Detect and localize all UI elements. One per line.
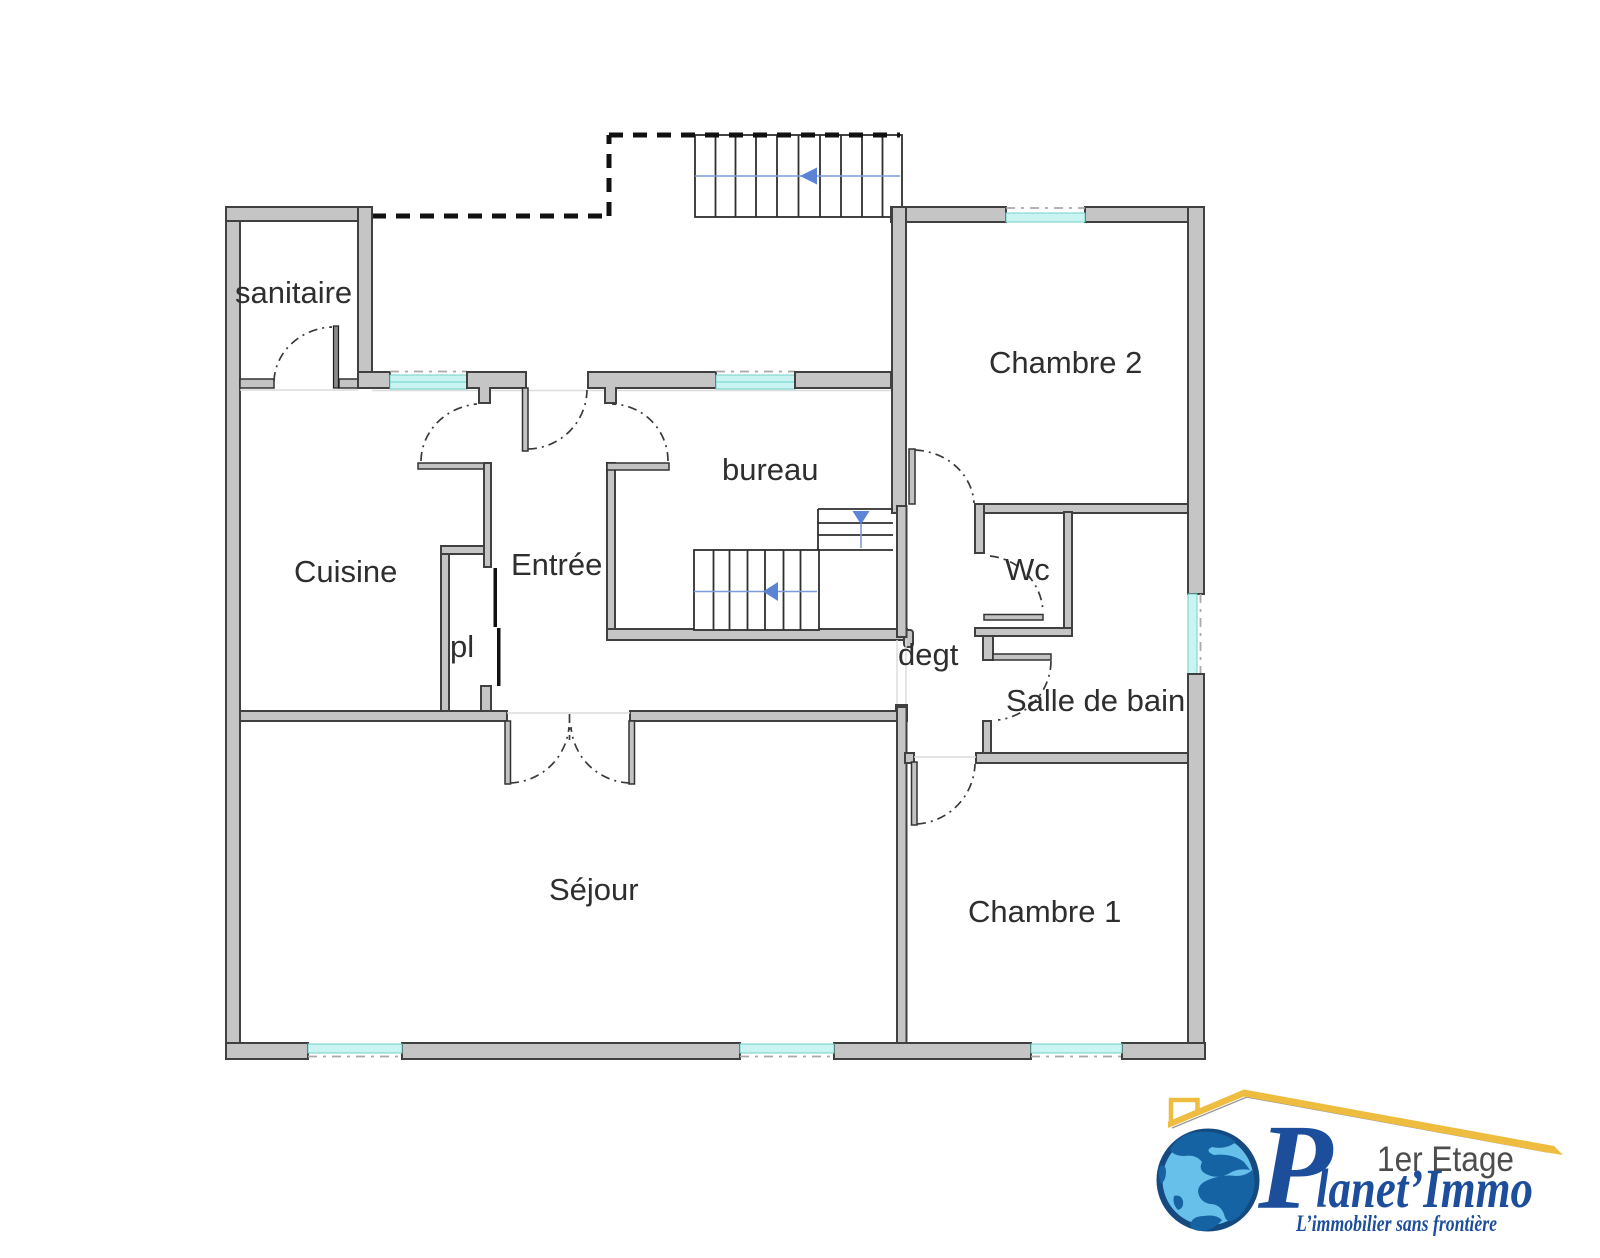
svg-text:L’immobilier sans frontière: L’immobilier sans frontière	[1295, 1211, 1497, 1236]
svg-text:lanet’Immo: lanet’Immo	[1316, 1158, 1533, 1219]
svg-text:bureau: bureau	[722, 452, 819, 487]
svg-text:Salle de bain: Salle de bain	[1006, 683, 1185, 718]
svg-text:pl: pl	[450, 629, 474, 664]
svg-text:Entrée: Entrée	[511, 547, 602, 582]
svg-text:Chambre 2: Chambre 2	[989, 345, 1142, 380]
svg-text:Cuisine: Cuisine	[294, 554, 397, 589]
svg-text:Séjour: Séjour	[549, 872, 639, 907]
svg-text:Chambre 1: Chambre 1	[968, 894, 1121, 929]
svg-text:sanitaire: sanitaire	[235, 275, 352, 310]
svg-text:degt: degt	[898, 637, 959, 672]
svg-text:Wc: Wc	[1005, 552, 1050, 587]
